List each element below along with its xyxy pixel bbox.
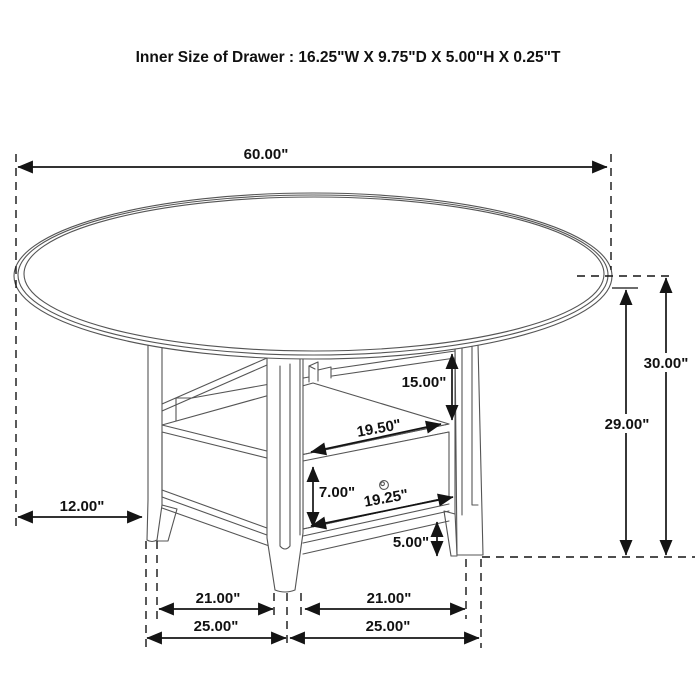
table-dimension-diagram: 60.00" 30.00" 29.00" 15.00" 19.50" 7.00" bbox=[0, 0, 700, 700]
dim-label-inner-span-right: 21.00" bbox=[367, 590, 412, 607]
dim-label-overall-height: 30.00" bbox=[644, 355, 689, 372]
dim-underside-height: 29.00" bbox=[601, 290, 652, 555]
dim-top-overhang: 12.00" bbox=[18, 498, 142, 517]
dim-label-underside-height: 29.00" bbox=[605, 416, 650, 433]
dim-label-outer-span-right: 25.00" bbox=[366, 618, 411, 635]
dim-label-base-height: 5.00" bbox=[393, 534, 429, 551]
dim-label-inner-span-left: 21.00" bbox=[196, 590, 241, 607]
dim-top-to-shelf: 15.00" bbox=[402, 354, 452, 420]
dim-label-drawer-height: 7.00" bbox=[319, 484, 355, 501]
dim-base-height: 5.00" bbox=[393, 522, 437, 556]
dim-label-top-overhang: 12.00" bbox=[60, 498, 105, 515]
dim-diameter: 60.00" bbox=[18, 146, 607, 167]
page-title: Inner Size of Drawer : 16.25"W X 9.75"D … bbox=[136, 49, 561, 66]
dim-label-top-to-shelf: 15.00" bbox=[402, 374, 447, 391]
dim-outer-span-left: 25.00" bbox=[147, 618, 286, 638]
back-leg bbox=[309, 362, 331, 382]
dim-inner-span-left: 21.00" bbox=[159, 590, 273, 609]
diagram-canvas: 60.00" 30.00" 29.00" 15.00" 19.50" 7.00" bbox=[0, 0, 700, 700]
dim-outer-span-right: 25.00" bbox=[290, 618, 479, 638]
dim-label-outer-span-left: 25.00" bbox=[194, 618, 239, 635]
left-leg bbox=[147, 338, 177, 542]
left-upper-rail bbox=[162, 358, 267, 404]
table-top bbox=[14, 193, 612, 359]
dim-inner-span-right: 21.00" bbox=[305, 590, 465, 609]
right-leg bbox=[444, 344, 483, 556]
dim-label-diameter: 60.00" bbox=[244, 146, 289, 163]
front-leg bbox=[267, 350, 303, 592]
